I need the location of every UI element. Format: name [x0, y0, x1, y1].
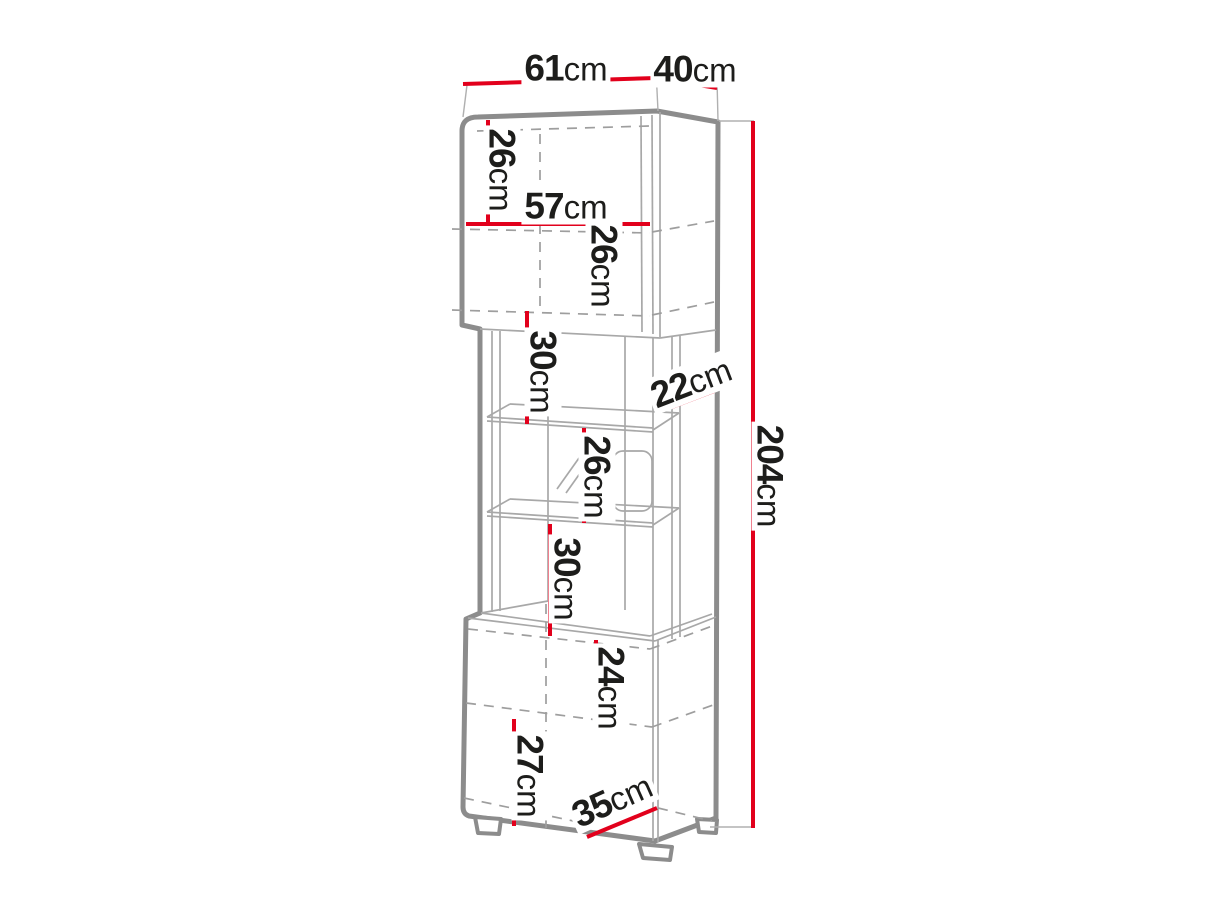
dimension-diagram: 61cm 40cm 26cm 57cm 26cm 30cm 22cm 26cm …	[0, 0, 1214, 910]
dim-label-top-depth: 40cm	[650, 51, 739, 88]
dim-label-lower-compartment-1: 24cm	[593, 643, 630, 732]
door-handle	[613, 451, 652, 511]
dim-label-total-height: 204cm	[752, 422, 789, 531]
dim-label-glass-compartment: 26cm	[579, 432, 616, 521]
dim-label-upper-compartment-2: 26cm	[586, 221, 623, 310]
dim-label-lower-compartment-2: 27cm	[512, 731, 549, 820]
dim-label-open-shelf-2: 30cm	[549, 534, 586, 623]
foot-back-right	[697, 819, 717, 833]
foot-front-left	[475, 817, 501, 834]
glass-shelf-upper	[487, 404, 679, 432]
dim-label-interior-width: 57cm	[521, 188, 610, 225]
dim-label-open-shelf-1: 30cm	[525, 327, 562, 416]
foot-front-right	[639, 844, 672, 860]
dim-label-top-width: 61cm	[521, 50, 610, 87]
dim-label-upper-compartment-1: 26cm	[484, 125, 521, 214]
